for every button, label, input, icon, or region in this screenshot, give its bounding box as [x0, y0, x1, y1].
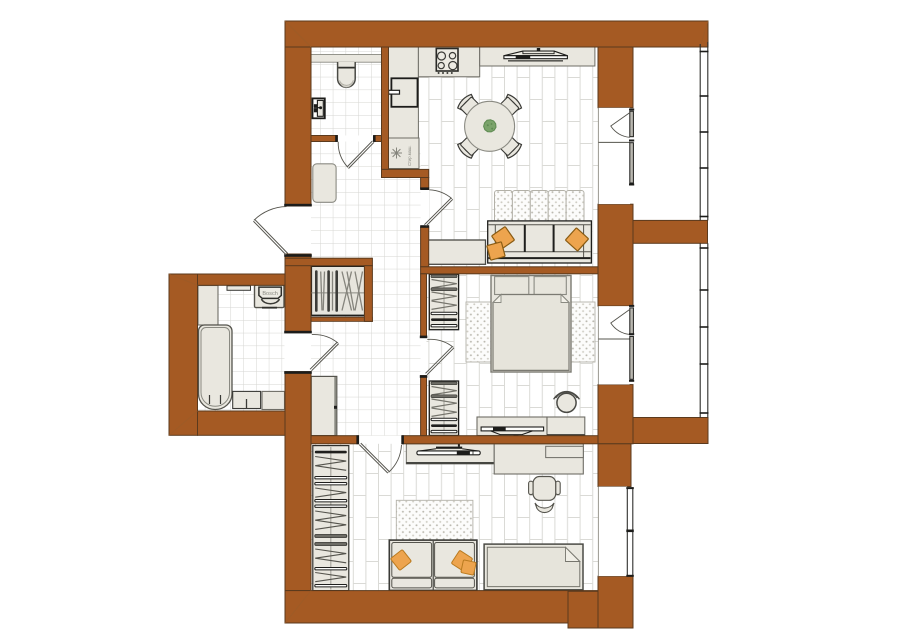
svg-text:Bosch: Bosch — [262, 291, 278, 297]
svg-text:Стир.маш.: Стир.маш. — [407, 145, 412, 166]
